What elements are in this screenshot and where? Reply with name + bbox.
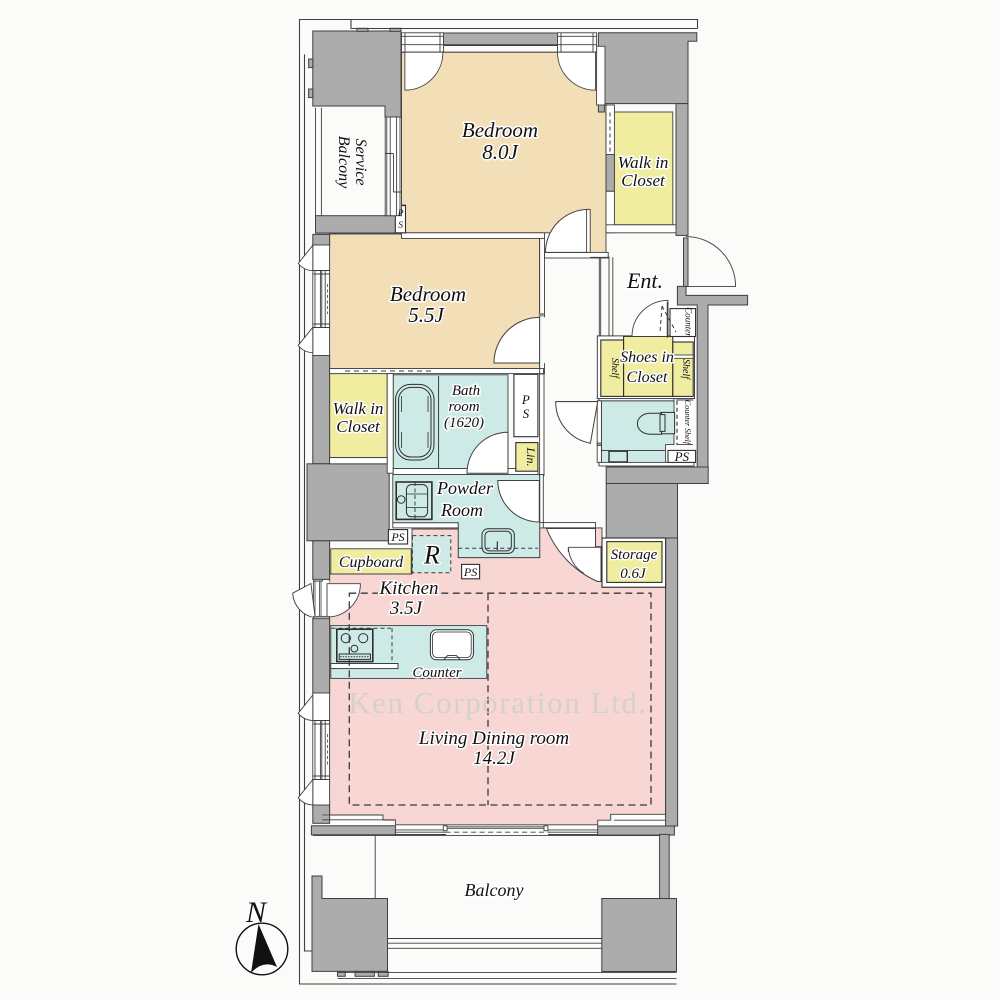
svg-text:Walk in: Walk in (333, 399, 384, 418)
svg-text:N: N (245, 896, 268, 929)
svg-text:Shelf: Shelf (609, 358, 620, 379)
svg-text:P: P (397, 209, 404, 219)
svg-text:PS: PS (674, 449, 690, 464)
svg-text:Room: Room (440, 500, 483, 520)
svg-text:14.2J: 14.2J (473, 748, 516, 769)
svg-text:room: room (448, 399, 479, 415)
svg-text:Closet: Closet (627, 369, 668, 386)
svg-text:5.5J: 5.5J (408, 303, 445, 327)
svg-text:Lin.: Lin. (524, 446, 538, 466)
svg-text:Bath: Bath (452, 383, 480, 399)
svg-text:Closet: Closet (336, 417, 381, 436)
svg-text:Counter Shelf: Counter Shelf (683, 400, 692, 446)
svg-text:(1620): (1620) (444, 415, 484, 431)
svg-text:Balcony: Balcony (465, 880, 524, 900)
svg-text:PS: PS (463, 565, 477, 579)
svg-text:S: S (398, 221, 403, 231)
svg-text:R: R (423, 541, 440, 570)
svg-text:Kitchen: Kitchen (378, 578, 438, 599)
svg-text:Storage: Storage (611, 547, 658, 563)
svg-text:Shoes in: Shoes in (620, 349, 674, 366)
svg-text:PS: PS (390, 530, 404, 544)
svg-text:Powder: Powder (436, 478, 494, 498)
svg-text:P: P (521, 392, 530, 407)
svg-text:Counter: Counter (412, 665, 461, 681)
svg-text:Walk in: Walk in (618, 153, 669, 172)
svg-text:Ken Corporation Ltd.: Ken Corporation Ltd. (348, 685, 648, 720)
svg-text:Shelf: Shelf (680, 359, 691, 380)
svg-text:S: S (523, 406, 530, 421)
svg-text:8.0J: 8.0J (482, 140, 519, 164)
svg-text:0.6J: 0.6J (620, 566, 647, 582)
svg-text:Counter: Counter (683, 307, 693, 337)
svg-text:Cupboard: Cupboard (339, 554, 404, 571)
svg-text:Closet: Closet (621, 171, 666, 190)
svg-text:Ent.: Ent. (626, 268, 663, 293)
svg-text:Bedroom: Bedroom (462, 118, 538, 142)
svg-text:3.5J: 3.5J (389, 598, 424, 619)
svg-text:Living Dining room: Living Dining room (418, 728, 569, 749)
svg-text:ServiceBalcony: ServiceBalcony (335, 136, 369, 189)
